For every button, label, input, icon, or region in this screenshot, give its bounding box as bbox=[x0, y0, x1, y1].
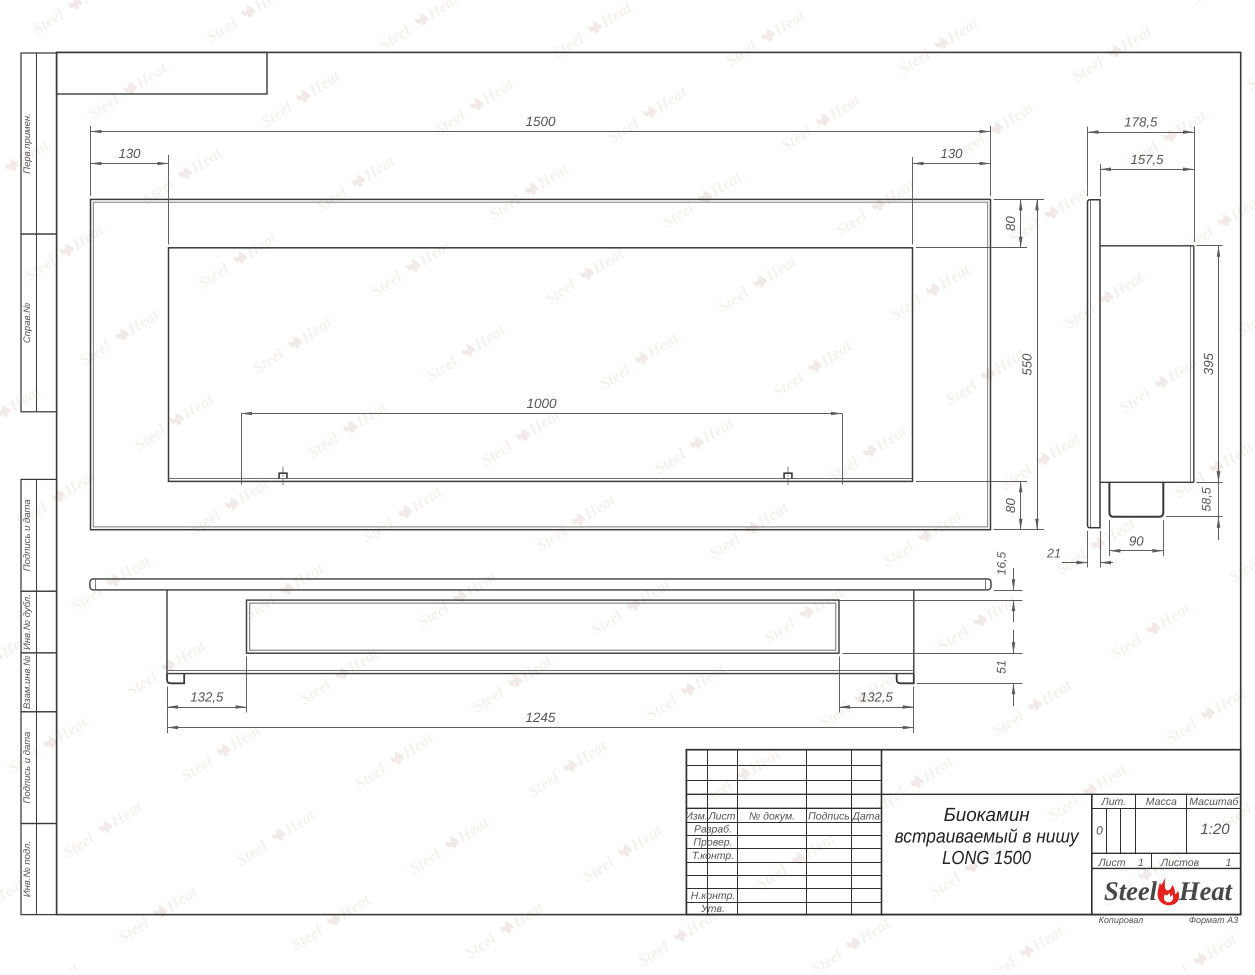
svg-text:1: 1 bbox=[1138, 857, 1144, 869]
svg-text:Формат A3: Формат A3 bbox=[1189, 915, 1238, 925]
svg-text:Heat: Heat bbox=[1178, 876, 1233, 906]
svg-text:21: 21 bbox=[1046, 547, 1061, 561]
svg-text:№ докум.: № докум. bbox=[749, 810, 795, 822]
svg-text:80: 80 bbox=[1003, 498, 1018, 513]
svg-text:130: 130 bbox=[940, 146, 963, 161]
svg-text:Взам.инв.№: Взам.инв.№ bbox=[22, 656, 33, 709]
svg-text:Масштаб: Масштаб bbox=[1189, 796, 1239, 808]
svg-text:Масса: Масса bbox=[1146, 796, 1177, 808]
svg-text:Инв.№ подл.: Инв.№ подл. bbox=[22, 841, 33, 897]
svg-text:51: 51 bbox=[995, 660, 1009, 674]
svg-text:1:20: 1:20 bbox=[1200, 821, 1230, 838]
svg-text:Перв.примен.: Перв.примен. bbox=[22, 113, 33, 174]
svg-text:Справ.№: Справ.№ bbox=[22, 303, 33, 344]
svg-text:Н.контр.: Н.контр. bbox=[691, 890, 735, 902]
svg-text:LONG 1500: LONG 1500 bbox=[942, 848, 1031, 869]
svg-text:130: 130 bbox=[118, 146, 141, 161]
svg-text:395: 395 bbox=[1201, 352, 1216, 375]
svg-text:Дата: Дата bbox=[851, 810, 880, 822]
svg-text:Лит.: Лит. bbox=[1101, 796, 1127, 808]
svg-text:Инв.№ дубл.: Инв.№ дубл. bbox=[22, 594, 33, 650]
svg-text:550: 550 bbox=[1020, 353, 1035, 376]
svg-text:Т.контр.: Т.контр. bbox=[692, 850, 734, 862]
svg-text:178,5: 178,5 bbox=[1124, 115, 1158, 130]
svg-text:Биокамин: Биокамин bbox=[944, 805, 1031, 826]
svg-text:0: 0 bbox=[1096, 824, 1103, 838]
svg-text:Подпись и дата: Подпись и дата bbox=[22, 732, 33, 804]
svg-text:16,5: 16,5 bbox=[995, 551, 1009, 575]
svg-text:встраиваемый в нишу: встраиваемый в нишу bbox=[895, 827, 1080, 848]
svg-text:Steel: Steel bbox=[1104, 876, 1157, 906]
svg-text:Утв.: Утв. bbox=[700, 903, 725, 915]
svg-text:132,5: 132,5 bbox=[190, 690, 224, 705]
svg-text:1000: 1000 bbox=[526, 396, 557, 411]
svg-text:80: 80 bbox=[1003, 216, 1018, 231]
svg-text:Лист: Лист bbox=[707, 810, 735, 822]
svg-text:Изм.: Изм. bbox=[685, 810, 707, 822]
svg-text:Листов: Листов bbox=[1160, 857, 1200, 869]
svg-text:Провер.: Провер. bbox=[693, 837, 732, 849]
svg-text:Копировал: Копировал bbox=[1099, 915, 1144, 925]
svg-text:Лист: Лист bbox=[1097, 857, 1125, 869]
svg-text:1245: 1245 bbox=[525, 710, 556, 725]
svg-text:90: 90 bbox=[1129, 533, 1144, 548]
svg-text:Подпись: Подпись bbox=[808, 810, 850, 822]
svg-text:1: 1 bbox=[1226, 857, 1232, 869]
svg-text:58,5: 58,5 bbox=[1200, 487, 1214, 511]
svg-text:Подпись и дата: Подпись и дата bbox=[22, 499, 33, 571]
svg-text:157,5: 157,5 bbox=[1130, 152, 1164, 167]
svg-text:132,5: 132,5 bbox=[860, 690, 894, 705]
svg-text:1500: 1500 bbox=[525, 114, 556, 129]
svg-text:Разраб.: Разраб. bbox=[694, 823, 732, 835]
